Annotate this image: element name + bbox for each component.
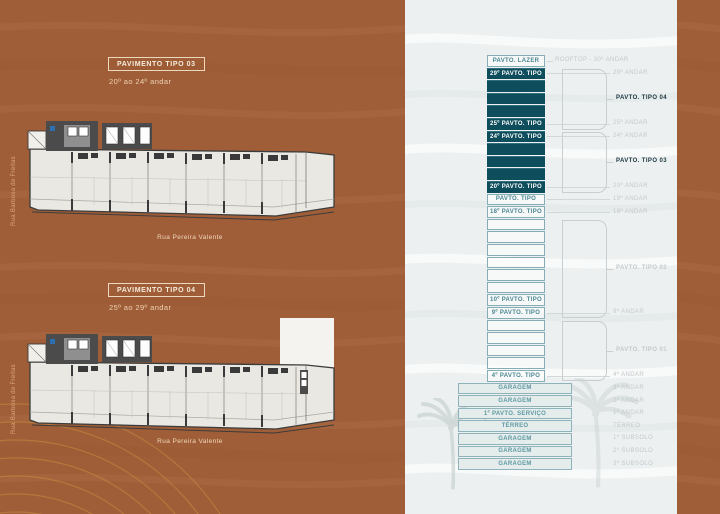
floor-row: GARAGEM <box>458 383 572 395</box>
floor-row <box>487 345 545 357</box>
floor-right-label: 3º ANDAR <box>613 385 644 391</box>
floor-row <box>487 244 545 256</box>
bracket-line <box>607 351 613 352</box>
bracket-line <box>607 99 613 100</box>
floor-right-label: 3º SUBSOLO <box>613 461 653 467</box>
floor-row <box>487 80 545 92</box>
floor-plan-drawing-tipo-03 <box>24 115 346 230</box>
floor-row <box>487 320 545 332</box>
floor-row <box>487 105 545 117</box>
plan-block-tipo-04: PAVIMENTO TIPO 04 25º ao 29º andar Rua B… <box>0 226 405 486</box>
floor-row: 1º PAVTO. SERVIÇO <box>458 408 572 420</box>
floor-row: TÉRREO <box>458 420 572 432</box>
bracket-line <box>607 162 613 163</box>
floor-row <box>487 168 545 180</box>
plan-floor-range: 25º ao 29º andar <box>109 303 171 312</box>
floor-right-label: 2º ANDAR <box>613 398 644 404</box>
floor-right-label: ROOFTOP - 30º ANDAR <box>555 57 629 63</box>
floor-row <box>487 282 545 294</box>
floor-row: 10º PAVTO. TIPO <box>487 294 545 306</box>
floor-row <box>487 219 545 231</box>
floor-row: 24º PAVTO. TIPO <box>487 131 545 143</box>
leader-line <box>547 61 553 62</box>
floor-right-label: 25º ANDAR <box>613 120 648 126</box>
floor-right-label: TÉRREO <box>613 423 640 429</box>
floor-plan-drawing-tipo-04 <box>24 318 346 443</box>
floor-stack-panel: PAVTO. LAZERROOFTOP - 30º ANDAR29º PAVTO… <box>405 0 677 514</box>
bracket-line <box>607 269 613 270</box>
bracket-tipo-02 <box>562 220 607 318</box>
plan-block-tipo-03: PAVIMENTO TIPO 03 20º ao 24º andar Rua B… <box>0 0 405 260</box>
floor-row: GARAGEM <box>458 458 572 470</box>
floor-right-label: 19º ANDAR <box>613 196 648 202</box>
bracket-label-tipo-02: PAVTO. TIPO 02 <box>616 265 667 271</box>
bracket-tipo-04 <box>562 69 607 130</box>
leader-line <box>547 212 610 213</box>
floor-right-label: 18º ANDAR <box>613 209 648 215</box>
bracket-label-tipo-01: PAVTO. TIPO 01 <box>616 347 667 353</box>
floor-row: 4º PAVTO. TIPO <box>487 370 545 382</box>
floor-right-label: 4º ANDAR <box>613 372 644 378</box>
floor-row <box>487 156 545 168</box>
floor-row: PAVTO. LAZER <box>487 55 545 67</box>
brochure-page: PAVIMENTO TIPO 03 20º ao 24º andar Rua B… <box>0 0 720 514</box>
bracket-tipo-01 <box>562 321 607 381</box>
floor-row <box>487 257 545 269</box>
plan-badge: PAVIMENTO TIPO 04 <box>108 283 205 297</box>
floor-row: 18º PAVTO. TIPO <box>487 206 545 218</box>
floor-row <box>487 357 545 369</box>
floor-row: 20º PAVTO. TIPO <box>487 181 545 193</box>
street-label-bottom: Rua Pereira Valente <box>30 438 350 445</box>
floor-right-label: 29º ANDAR <box>613 70 648 76</box>
leader-line <box>547 199 610 200</box>
floor-row <box>487 143 545 155</box>
floor-right-label: 20º ANDAR <box>613 183 648 189</box>
floor-row: 9º PAVTO. TIPO <box>487 307 545 319</box>
street-label-left: Rua Barbosa de Freitas <box>11 145 17 237</box>
bracket-label-tipo-03: PAVTO. TIPO 03 <box>616 158 667 164</box>
floor-row: GARAGEM <box>458 446 572 458</box>
bracket-label-tipo-04: PAVTO. TIPO 04 <box>616 95 667 101</box>
floor-row: GARAGEM <box>458 395 572 407</box>
floor-row: 29º PAVTO. TIPO <box>487 68 545 80</box>
plan-badge: PAVIMENTO TIPO 03 <box>108 57 205 71</box>
floor-row <box>487 93 545 105</box>
floor-right-label: 9º ANDAR <box>613 309 644 315</box>
floor-row <box>487 231 545 243</box>
floor-row: 25º PAVTO. TIPO <box>487 118 545 130</box>
floor-row: GARAGEM <box>458 433 572 445</box>
floor-row: PAVTO. TIPO <box>487 194 545 206</box>
floor-right-label: 2º SUBSOLO <box>613 448 653 454</box>
floor-row <box>487 332 545 344</box>
floor-right-label: 1º SUBSOLO <box>613 435 653 441</box>
street-label-left: Rua Barbosa de Freitas <box>11 353 17 445</box>
bracket-tipo-03 <box>562 132 607 193</box>
floor-right-label: 24º ANDAR <box>613 133 648 139</box>
plan-floor-range: 20º ao 24º andar <box>109 77 171 86</box>
floor-row <box>487 269 545 281</box>
floor-right-label: 1º ANDAR <box>613 410 644 416</box>
